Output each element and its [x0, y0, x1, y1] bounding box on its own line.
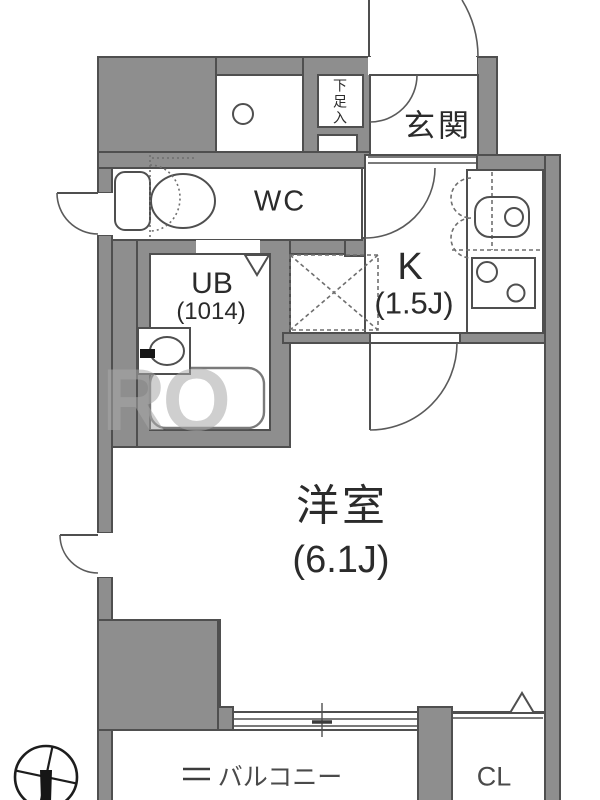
kitchen-label: K [397, 248, 422, 286]
ub-door-opening [196, 240, 260, 255]
wc-side-door [57, 193, 98, 234]
genkan-label: 玄関 [404, 111, 472, 142]
ub-label: UB [191, 269, 233, 299]
balcony-pillar [418, 707, 452, 800]
lower-left-block [98, 620, 218, 730]
room-side-door [60, 535, 98, 573]
watermark: RO [102, 349, 228, 451]
shoe-storage-label: 下足入 [333, 78, 347, 126]
main-room-label: 洋室 [296, 486, 388, 529]
balcony-label: バルコニー [218, 766, 343, 791]
ub-size-label: (1014) [176, 300, 245, 324]
wc-label: WC [254, 188, 306, 217]
entrance-door-opening [368, 57, 477, 75]
closet-label: CL [477, 764, 512, 791]
floor-plan-drawing [0, 0, 600, 800]
floor-plan: RO 下足入 玄関 WC UB (1014) K (1.5J) 洋室 (6.1J… [0, 0, 600, 800]
window-end-post [218, 707, 233, 730]
kitchen-size-label: (1.5J) [374, 288, 453, 319]
laundry-space [216, 75, 303, 152]
compass-icon [9, 740, 83, 800]
main-room-size-label: (6.1J) [292, 541, 389, 579]
shoe-storage-lower [318, 135, 357, 152]
